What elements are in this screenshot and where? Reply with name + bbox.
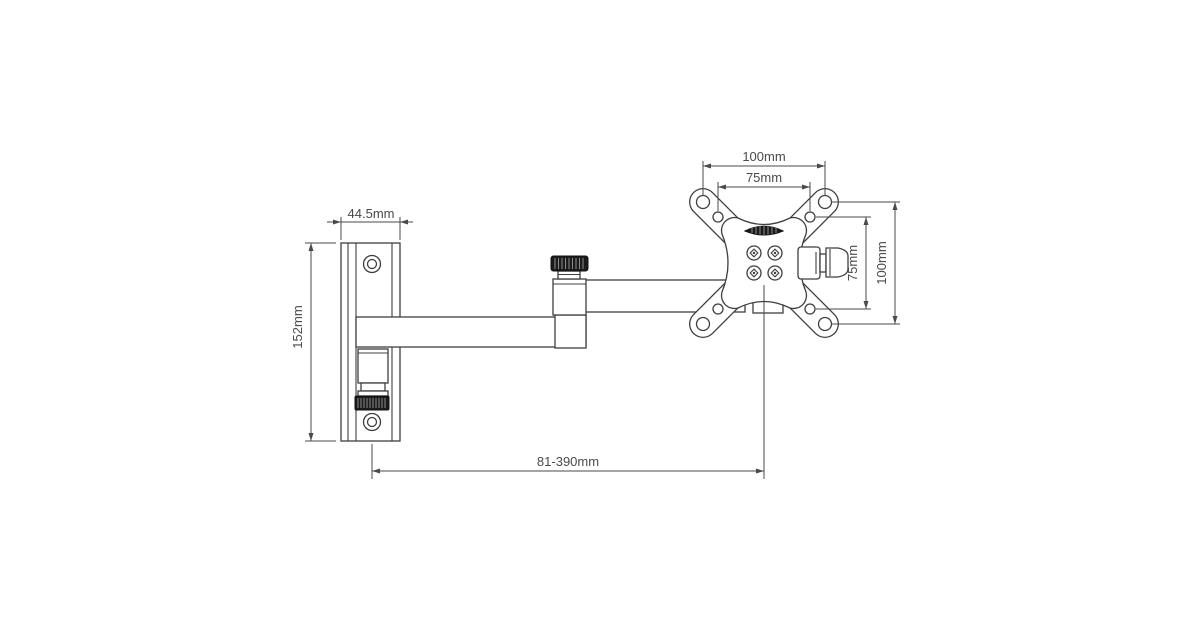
label-vesa-inner-height: 75mm [845, 245, 860, 281]
mount-drawing-svg: 44.5mm 152mm 100mm 75mm 75mm [0, 0, 1200, 630]
label-vesa-outer-width: 100mm [742, 149, 785, 164]
label-vesa-inner-width: 75mm [746, 170, 782, 185]
technical-drawing-canvas: 44.5mm 152mm 100mm 75mm 75mm [0, 0, 1200, 630]
label-vesa-outer-height: 100mm [874, 241, 889, 284]
wall-joint-knurled-ring [355, 396, 389, 410]
label-wall-plate-height: 152mm [290, 305, 305, 348]
elbow-joint [551, 256, 588, 348]
background [0, 0, 1200, 630]
wall-screw-hole-bottom [364, 414, 381, 431]
label-wall-plate-width: 44.5mm [348, 206, 395, 221]
lower-arm [356, 317, 586, 347]
elbow-thumb-screw [551, 256, 588, 271]
wall-screw-hole-top [364, 256, 381, 273]
label-extension-range: 81-390mm [537, 454, 599, 469]
